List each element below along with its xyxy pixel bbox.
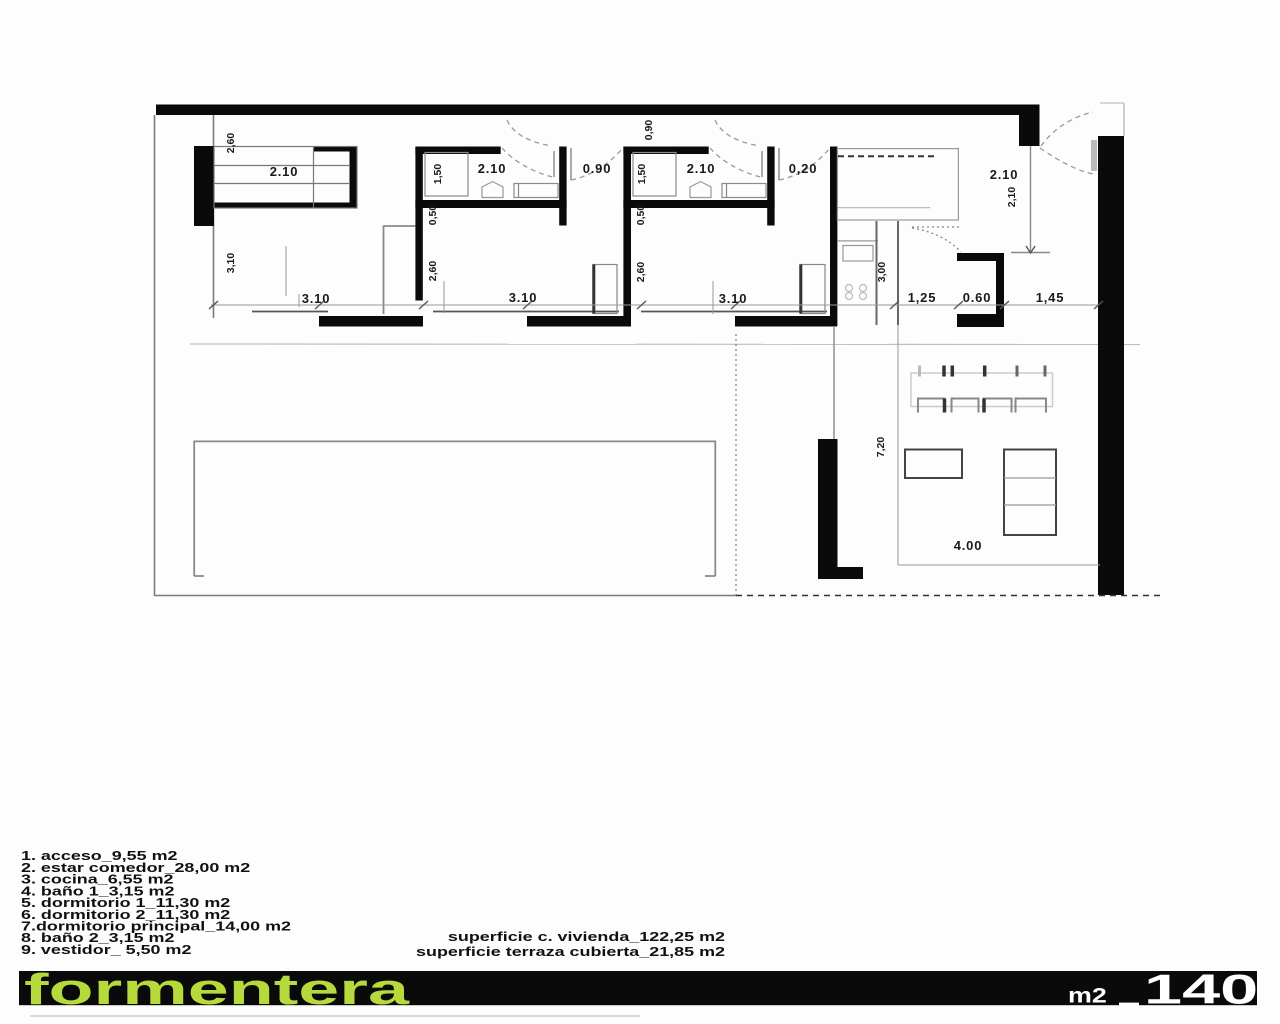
svg-text:2,60: 2,60 xyxy=(225,133,237,154)
svg-text:3.10: 3.10 xyxy=(719,291,748,306)
svg-text:2.10: 2.10 xyxy=(478,161,507,176)
svg-text:3,10: 3,10 xyxy=(225,253,237,274)
svg-text:9. vestidor_ 5,50 m2: 9. vestidor_ 5,50 m2 xyxy=(21,943,192,957)
svg-text:2,60: 2,60 xyxy=(635,262,647,283)
svg-text:2.10: 2.10 xyxy=(687,161,716,176)
svg-text:4.00: 4.00 xyxy=(954,538,983,553)
svg-text:140: 140 xyxy=(1144,967,1258,1014)
svg-text:formentera: formentera xyxy=(24,964,410,1013)
svg-text:1,45: 1,45 xyxy=(1036,290,1065,305)
svg-text:1,25: 1,25 xyxy=(908,290,937,305)
svg-text:3.10: 3.10 xyxy=(302,291,331,306)
svg-text:1,50: 1,50 xyxy=(636,164,648,185)
svg-text:2,60: 2,60 xyxy=(427,261,439,282)
svg-text:3,00: 3,00 xyxy=(876,262,888,283)
svg-text:7,20: 7,20 xyxy=(875,437,887,458)
svg-text:3.10: 3.10 xyxy=(509,290,538,305)
svg-text:1,50: 1,50 xyxy=(432,164,444,185)
svg-text:m2: m2 xyxy=(1068,984,1107,1008)
svg-text:0,20: 0,20 xyxy=(789,161,818,176)
svg-text:0.90: 0.90 xyxy=(583,161,612,176)
svg-text:2.10: 2.10 xyxy=(990,167,1019,182)
svg-text:0,50: 0,50 xyxy=(635,205,647,226)
svg-text:superficie c. vivienda_122,25: superficie c. vivienda_122,25 m2 xyxy=(448,930,725,944)
svg-text:2.10: 2.10 xyxy=(270,164,299,179)
svg-text:0.60: 0.60 xyxy=(963,290,992,305)
svg-text:0,90: 0,90 xyxy=(643,120,655,141)
svg-text:superficie terraza cubierta_21: superficie terraza cubierta_21,85 m2 xyxy=(416,945,725,959)
svg-text:0,50: 0,50 xyxy=(427,205,439,226)
svg-text:2,10: 2,10 xyxy=(1006,187,1018,208)
